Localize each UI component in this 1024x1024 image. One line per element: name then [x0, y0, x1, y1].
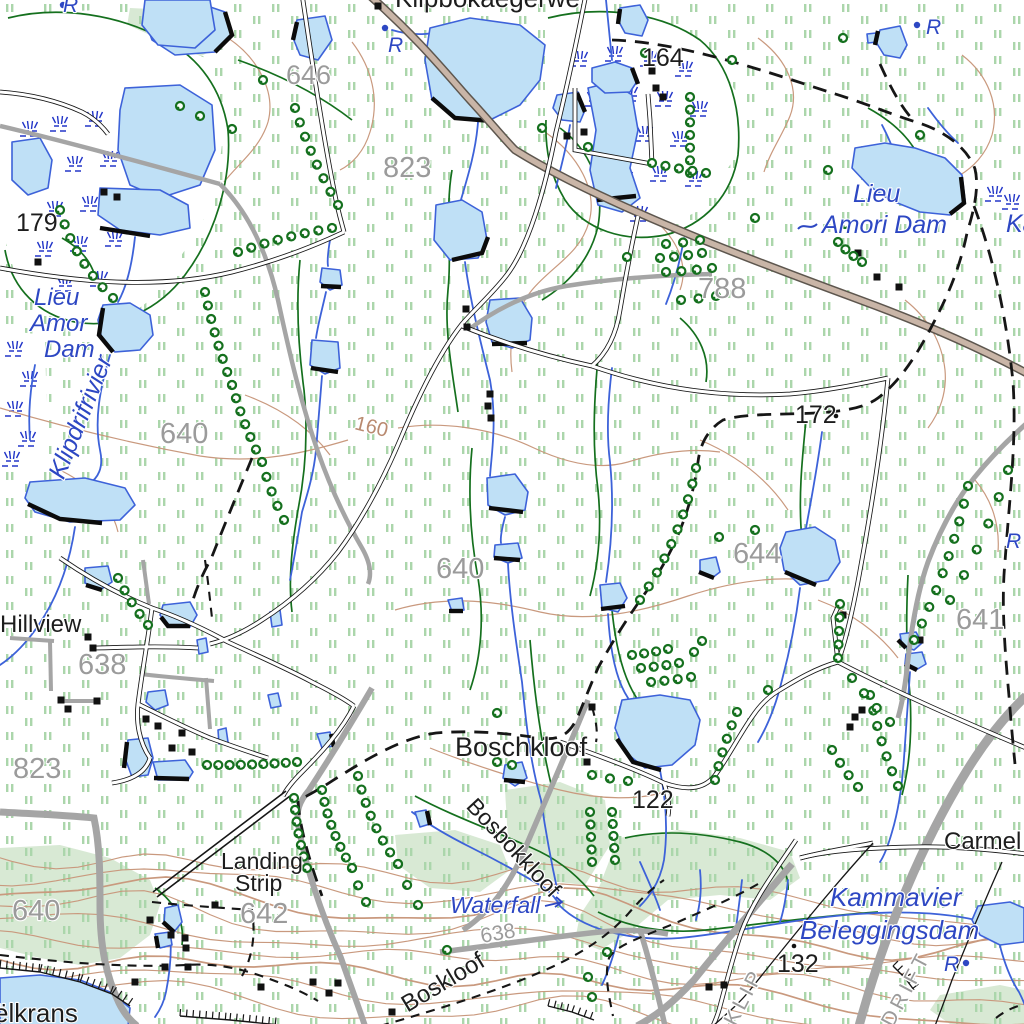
label-reservoir-r4: R [1006, 530, 1021, 553]
label-farm-642: 642 [240, 898, 288, 930]
label-reservoir-r5: R [944, 953, 959, 976]
label-ka-partial: Ka [1006, 210, 1024, 238]
label-reservoir-r1: R [388, 34, 403, 57]
label-reservoir-r2: R [63, 0, 78, 17]
label-lieu-amori-1: Lieu [853, 180, 900, 208]
label-farm-638: 638 [78, 649, 126, 681]
label-spot-132: 132 [777, 950, 819, 978]
label-elkrans-partial: ëlkrans [0, 998, 78, 1024]
label-lieu-amor-1: Lieu [34, 284, 79, 311]
label-waterfall: Waterfall [450, 892, 541, 918]
label-farm-640b: 640 [436, 553, 484, 585]
label-reservoir-r3: R [926, 16, 941, 39]
label-kammavier: Kammavier [830, 882, 963, 912]
topographic-map: Klipbokaegerwe R R R R R 646 823 164 788… [0, 0, 1024, 1024]
label-place-carmel: Carmel [944, 828, 1021, 855]
label-farm-823b: 823 [13, 753, 61, 785]
label-lieu-amor-3: Dam [44, 336, 95, 363]
map-canvas[interactable]: Klipbokaegerwe R R R R R 646 823 164 788… [0, 0, 1024, 1024]
label-farm-788: 788 [698, 273, 746, 305]
label-landing-strip-2: Strip [235, 870, 282, 896]
label-farm-641: 641 [956, 604, 1004, 636]
label-place-boschkloof: Boschkloof [455, 732, 588, 762]
label-farm-top: Klipbokaegerwe [395, 0, 580, 13]
label-lieu-amori-2: Amori Dam [820, 211, 947, 239]
label-farm-640a: 640 [160, 418, 208, 450]
label-farm-644: 644 [733, 538, 781, 570]
label-spot-179: 179 [16, 209, 58, 237]
label-spot-122: 122 [632, 786, 674, 814]
label-lieu-amor-2: Amor [28, 310, 88, 337]
label-farm-646: 646 [286, 60, 331, 90]
label-spot-172: 172 [795, 401, 837, 429]
label-spot-164: 164 [642, 44, 684, 72]
label-farm-640c: 640 [12, 895, 60, 927]
label-farm-823a: 823 [383, 152, 431, 184]
label-beleggingsdam: Beleggingsdam [800, 915, 979, 945]
label-place-hillview: Hillview [0, 611, 82, 638]
